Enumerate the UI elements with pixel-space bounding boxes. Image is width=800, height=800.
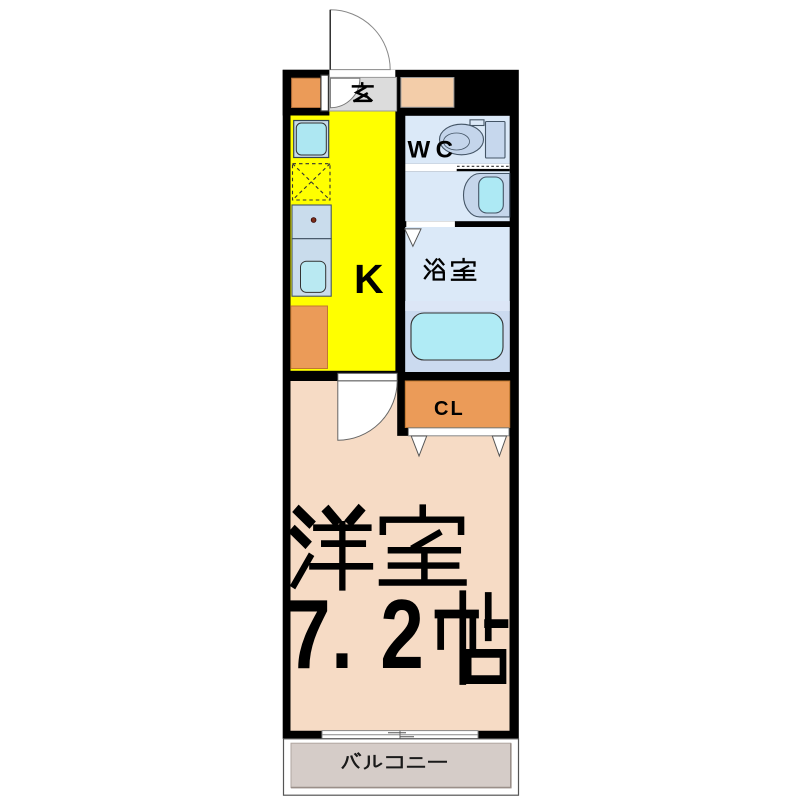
svg-text:CL: CL xyxy=(434,398,465,420)
svg-text:2: 2 xyxy=(380,580,424,689)
svg-text:WC: WC xyxy=(408,137,459,164)
svg-text:.: . xyxy=(331,580,353,689)
svg-text:K: K xyxy=(354,256,384,302)
svg-text:7: 7 xyxy=(287,580,331,689)
